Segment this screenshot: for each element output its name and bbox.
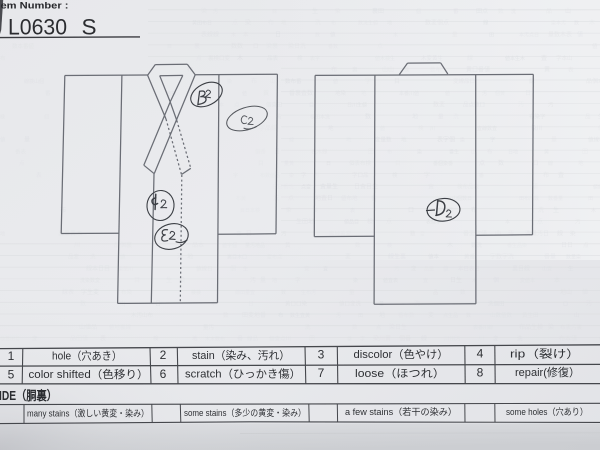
svg-text:検: 検 — [392, 171, 398, 179]
svg-text:裏目木口: 裏目木口 — [227, 254, 247, 261]
svg-text:染量川: 染量川 — [118, 265, 133, 272]
svg-text:個: 個 — [44, 113, 49, 120]
svg-text:a few stains（若干の染み）: a few stains（若干の染み） — [345, 406, 457, 417]
svg-text:木木数布: 木木数布 — [205, 336, 225, 343]
svg-text:線生裏: 線生裏 — [388, 253, 406, 261]
svg-text:洗: 洗 — [517, 335, 523, 343]
svg-text:地: 地 — [187, 253, 193, 261]
svg-text:値口変洗: 値口変洗 — [339, 300, 362, 308]
svg-text:布: 布 — [487, 147, 493, 155]
svg-text:番量: 番量 — [544, 254, 556, 261]
svg-text:染: 染 — [286, 206, 292, 214]
svg-text:線: 線 — [421, 335, 427, 343]
svg-text:rip（裂け）: rip（裂け） — [510, 347, 580, 360]
svg-text:変: 変 — [32, 335, 38, 343]
svg-text:数: 数 — [315, 31, 320, 38]
svg-text:変: 変 — [493, 335, 499, 343]
svg-text:個査田: 個査田 — [266, 101, 283, 109]
svg-text:個: 個 — [416, 8, 421, 15]
svg-text:染: 染 — [548, 323, 554, 331]
svg-text:本番川値: 本番川値 — [399, 90, 419, 97]
svg-text:品田値: 品田値 — [70, 335, 88, 343]
svg-text:日日: 日日 — [561, 242, 573, 249]
svg-text:数洗: 数洗 — [471, 241, 483, 249]
svg-text:hole（穴あき）: hole（穴あき） — [52, 349, 122, 363]
svg-text:番: 番 — [237, 336, 243, 343]
svg-text:数: 数 — [223, 311, 229, 319]
svg-text:田: 田 — [582, 148, 588, 155]
svg-text:個: 個 — [230, 264, 236, 272]
svg-text:地: 地 — [379, 311, 385, 319]
svg-text:黄番: 黄番 — [464, 253, 476, 261]
svg-text:線: 線 — [467, 54, 473, 62]
svg-text:染日洗: 染日洗 — [288, 42, 306, 50]
svg-text:変: 変 — [411, 264, 417, 272]
svg-text:変線品口: 変線品口 — [453, 77, 475, 85]
svg-text:1: 1 — [8, 349, 15, 363]
svg-text:番: 番 — [479, 172, 484, 179]
svg-text:地: 地 — [361, 89, 367, 97]
svg-text:em Number :: em Number : — [1, 1, 69, 11]
svg-text:染: 染 — [227, 78, 232, 85]
svg-text:変布点: 変布点 — [267, 254, 282, 261]
svg-text:数: 数 — [466, 312, 471, 319]
svg-text:線: 線 — [289, 137, 294, 144]
svg-text:値: 値 — [577, 30, 583, 38]
svg-text:生: 生 — [166, 276, 172, 284]
svg-text:汚: 汚 — [508, 229, 514, 237]
svg-text:裏: 裏 — [194, 42, 200, 50]
svg-text:値線検目: 値線検目 — [588, 136, 600, 144]
svg-text:生: 生 — [312, 7, 318, 15]
svg-text:値: 値 — [380, 125, 385, 132]
svg-text:量: 量 — [260, 277, 266, 284]
svg-text:洗: 洗 — [453, 112, 459, 120]
svg-text:点: 点 — [19, 160, 25, 167]
svg-text:字: 字 — [301, 171, 307, 179]
svg-text:値査表: 値査表 — [383, 277, 398, 284]
svg-text:生: 生 — [553, 206, 559, 214]
svg-text:変: 変 — [428, 311, 434, 319]
svg-text:変値本: 変値本 — [520, 277, 535, 284]
svg-text:数: 数 — [460, 288, 466, 296]
svg-text:日: 日 — [155, 301, 161, 308]
svg-text:some holes（穴あり）: some holes（穴あり） — [506, 406, 588, 417]
svg-text:表木線: 表木線 — [311, 147, 328, 155]
svg-text:口: 口 — [408, 207, 414, 214]
svg-text:S: S — [82, 15, 97, 40]
svg-text:番表: 番表 — [15, 147, 27, 155]
svg-text:値: 値 — [242, 90, 247, 97]
svg-text:数: 数 — [80, 300, 86, 308]
svg-text:量: 量 — [452, 31, 458, 38]
svg-text:品表: 品表 — [267, 54, 279, 62]
svg-text:査: 査 — [323, 265, 328, 272]
svg-text:値: 値 — [592, 42, 598, 50]
svg-text:数: 数 — [355, 241, 361, 249]
svg-text:川: 川 — [478, 336, 484, 343]
svg-text:地: 地 — [192, 335, 198, 343]
svg-text:目: 目 — [134, 277, 140, 284]
svg-text:品: 品 — [546, 8, 552, 15]
svg-text:山: 山 — [565, 7, 571, 15]
svg-text:L0630: L0630 — [8, 15, 67, 40]
svg-text:値地裏線: 値地裏線 — [109, 323, 132, 331]
svg-text:検: 検 — [313, 207, 318, 214]
svg-text:字数字洗: 字数字洗 — [490, 253, 514, 261]
svg-text:表字個: 表字個 — [437, 136, 455, 144]
svg-text:repair(修復）: repair(修復） — [515, 365, 580, 379]
svg-text:個番: 個番 — [399, 335, 411, 343]
svg-text:点: 点 — [234, 102, 240, 109]
svg-text:布本値: 布本値 — [559, 335, 577, 343]
svg-text:洗: 洗 — [511, 8, 516, 15]
svg-text:染: 染 — [335, 7, 341, 15]
svg-text:表: 表 — [100, 335, 106, 343]
svg-text:布: 布 — [187, 66, 193, 74]
svg-text:数: 数 — [498, 159, 504, 167]
svg-text:染: 染 — [353, 277, 358, 284]
svg-text:番: 番 — [45, 90, 51, 97]
svg-text:線表: 線表 — [62, 288, 74, 296]
svg-text:番個染番: 番個染番 — [433, 160, 453, 167]
svg-text:数番量: 数番量 — [548, 195, 563, 202]
svg-text:字: 字 — [490, 136, 496, 144]
svg-text:生: 生 — [568, 264, 574, 272]
svg-text:some stains（多少の黄変・染み）: some stains（多少の黄変・染み） — [184, 407, 306, 418]
svg-text:黄: 黄 — [263, 89, 269, 97]
svg-text:字生変: 字生変 — [81, 288, 99, 296]
svg-text:品個本洗: 品個本洗 — [586, 77, 600, 85]
svg-text:数: 数 — [352, 323, 358, 331]
svg-text:汚: 汚 — [548, 101, 554, 109]
svg-text:検検: 検検 — [191, 289, 201, 296]
svg-text:字: 字 — [295, 276, 301, 284]
svg-text:検: 検 — [418, 124, 424, 132]
svg-text:表: 表 — [568, 66, 574, 74]
svg-text:点: 点 — [386, 218, 392, 226]
svg-text:黄田布日: 黄田布日 — [192, 20, 212, 27]
svg-text:山数値数: 山数値数 — [490, 311, 513, 319]
svg-text:字本山: 字本山 — [556, 54, 573, 62]
svg-text:洗量汚日: 洗量汚日 — [525, 229, 549, 237]
svg-text:口: 口 — [533, 160, 539, 167]
svg-text:検: 検 — [367, 218, 373, 226]
svg-text:検田本洗: 検田本洗 — [310, 113, 330, 120]
svg-text:田: 田 — [368, 148, 374, 155]
svg-text:線検山個: 線検山個 — [24, 78, 44, 85]
svg-text:布品生検: 布品生検 — [519, 323, 543, 331]
svg-text:洗: 洗 — [305, 323, 311, 331]
svg-text:値字個: 値字個 — [222, 242, 237, 249]
svg-text:生田地: 生田地 — [296, 218, 314, 226]
svg-text:数: 数 — [281, 289, 286, 296]
svg-text:数本番値: 数本番値 — [12, 42, 35, 50]
svg-text:査: 査 — [304, 264, 310, 272]
svg-text:黄生田: 黄生田 — [522, 311, 539, 319]
svg-text:数: 数 — [574, 20, 579, 27]
svg-text:2: 2 — [160, 348, 167, 362]
svg-text:木: 木 — [231, 31, 236, 38]
svg-text:布表汚裏: 布表汚裏 — [560, 323, 583, 331]
svg-text:本汚点日: 本汚点日 — [519, 31, 539, 38]
svg-text:値: 値 — [443, 264, 449, 272]
svg-text:生: 生 — [243, 265, 248, 272]
svg-text:数変: 数変 — [433, 101, 445, 109]
svg-text:点: 点 — [377, 42, 383, 50]
svg-text:布: 布 — [387, 148, 392, 155]
svg-text:本: 本 — [211, 301, 216, 308]
svg-text:染: 染 — [460, 137, 465, 144]
svg-text:布: 布 — [60, 206, 66, 214]
svg-text:点: 点 — [288, 194, 294, 202]
svg-text:山山: 山山 — [382, 66, 394, 74]
svg-text:値線裏表: 値線裏表 — [593, 184, 600, 191]
svg-text:染: 染 — [289, 172, 294, 179]
svg-text:地: 地 — [281, 19, 287, 27]
svg-text:数量染: 数量染 — [566, 254, 581, 261]
svg-text:洗染数変: 洗染数変 — [80, 277, 100, 284]
svg-text:汚: 汚 — [177, 253, 183, 261]
svg-text:個: 個 — [493, 276, 499, 284]
svg-text:木汚山布: 木汚山布 — [131, 311, 154, 319]
svg-text:検: 検 — [153, 335, 159, 343]
svg-text:数: 数 — [498, 7, 504, 15]
svg-text:6: 6 — [160, 367, 167, 381]
svg-text:染: 染 — [201, 7, 207, 15]
svg-text:値: 値 — [445, 90, 450, 97]
svg-text:布: 布 — [0, 54, 6, 62]
svg-text:布黄: 布黄 — [236, 195, 246, 202]
svg-text:品本: 品本 — [192, 241, 204, 249]
svg-text:値線日: 値線日 — [196, 264, 213, 272]
svg-text:量汚: 量汚 — [203, 323, 215, 331]
svg-text:線: 線 — [548, 160, 553, 167]
svg-text:字: 字 — [424, 171, 430, 179]
svg-text:田変地番: 田変地番 — [242, 311, 266, 319]
svg-text:布: 布 — [543, 171, 549, 179]
svg-text:地: 地 — [401, 136, 407, 144]
svg-text:数数: 数数 — [231, 42, 243, 50]
svg-text:変: 変 — [420, 230, 425, 237]
svg-text:7: 7 — [318, 366, 325, 380]
svg-text:布: 布 — [278, 311, 284, 319]
svg-text:日生: 日生 — [450, 276, 462, 284]
svg-text:点: 点 — [232, 19, 238, 27]
svg-text:点: 点 — [583, 242, 589, 249]
svg-text:値品目: 値品目 — [344, 219, 359, 226]
svg-text:地: 地 — [272, 277, 277, 284]
svg-text:裏: 裏 — [236, 229, 242, 237]
svg-text:布: 布 — [251, 77, 257, 85]
svg-text:目日本検: 目日本検 — [240, 207, 260, 214]
svg-text:8: 8 — [477, 365, 484, 379]
svg-text:黄口番値: 黄口番値 — [466, 66, 490, 74]
svg-text:染日生: 染日生 — [389, 323, 407, 331]
svg-text:loose（ほつれ）: loose（ほつれ） — [355, 367, 445, 380]
svg-text:洗: 洗 — [315, 19, 321, 27]
svg-text:日: 日 — [525, 90, 531, 97]
svg-text:量汚地品: 量汚地品 — [245, 242, 265, 249]
svg-text:字: 字 — [365, 77, 371, 85]
svg-text:洗: 洗 — [90, 253, 96, 261]
svg-text:品点数口: 品点数口 — [463, 101, 485, 109]
svg-text:地: 地 — [387, 20, 392, 27]
svg-text:洗個田: 洗個田 — [488, 300, 505, 308]
svg-text:個黄: 個黄 — [495, 90, 505, 97]
svg-text:木変黄生: 木変黄生 — [421, 54, 444, 62]
svg-text:数生査黄: 数生査黄 — [290, 312, 310, 319]
svg-text:番生: 番生 — [449, 148, 459, 155]
svg-text:汚: 汚 — [394, 264, 400, 272]
svg-text:字口品: 字口品 — [352, 171, 369, 179]
svg-text:地染: 地染 — [335, 89, 347, 97]
svg-text:量: 量 — [349, 289, 355, 296]
svg-text:本: 本 — [554, 276, 560, 284]
svg-text:番: 番 — [347, 336, 352, 343]
svg-text:量黄: 量黄 — [284, 160, 294, 167]
svg-text:本日表目: 本日表目 — [458, 264, 480, 272]
svg-text:線: 線 — [557, 229, 563, 237]
svg-text:品個裏: 品個裏 — [114, 241, 132, 249]
svg-text:日: 日 — [275, 31, 281, 38]
svg-text:汚: 汚 — [281, 229, 287, 237]
svg-text:IDE（胴裏）: IDE（胴裏） — [0, 388, 57, 403]
svg-text:量数木表: 量数木表 — [548, 30, 572, 38]
svg-text:裏田: 裏田 — [372, 7, 384, 15]
svg-text:山査: 山査 — [542, 265, 552, 272]
svg-text:汚: 汚 — [482, 90, 487, 97]
svg-text:線: 線 — [529, 77, 535, 85]
svg-text:本: 本 — [243, 30, 249, 38]
svg-text:検: 検 — [387, 242, 392, 249]
svg-text:地査日: 地査日 — [315, 194, 333, 202]
svg-text:地: 地 — [578, 159, 584, 167]
svg-text:番: 番 — [453, 8, 459, 15]
svg-text:表線線: 表線線 — [201, 30, 219, 38]
svg-text:目: 目 — [258, 160, 264, 167]
svg-text:川: 川 — [74, 242, 80, 249]
svg-text:品変: 品変 — [68, 253, 80, 261]
svg-text:数布番: 数布番 — [285, 77, 302, 85]
svg-text:裏目線: 裏目線 — [512, 264, 530, 272]
svg-text:検: 検 — [297, 54, 303, 62]
svg-text:木: 木 — [393, 31, 398, 38]
svg-text:染川黄: 染川黄 — [373, 335, 391, 343]
svg-text:木: 木 — [447, 241, 453, 249]
svg-text:scratch（ひっかき傷）: scratch（ひっかき傷） — [185, 367, 301, 381]
svg-text:検: 検 — [0, 113, 5, 120]
svg-text:地山: 地山 — [560, 288, 572, 296]
svg-text:山: 山 — [495, 229, 501, 237]
svg-text:地: 地 — [328, 124, 334, 132]
svg-text:品量: 品量 — [424, 265, 434, 272]
svg-text:表: 表 — [36, 171, 42, 179]
svg-text:数: 数 — [410, 229, 416, 237]
svg-text:染本汚: 染本汚 — [551, 20, 566, 27]
svg-text:量: 量 — [438, 113, 444, 120]
svg-text:点生品: 点生品 — [443, 312, 458, 319]
svg-text:個表布検: 個表布検 — [349, 159, 372, 167]
svg-text:表: 表 — [350, 207, 355, 214]
svg-text:川田汚: 川田汚 — [444, 335, 461, 343]
svg-text:田点: 田点 — [476, 7, 488, 15]
svg-text:変量数: 変量数 — [375, 136, 392, 144]
svg-text:本: 本 — [505, 219, 510, 226]
svg-text:表字: 表字 — [310, 55, 320, 62]
svg-text:点変: 点変 — [301, 184, 311, 191]
svg-text:日日番洗: 日日番洗 — [272, 183, 295, 191]
svg-text:日地: 日地 — [508, 148, 518, 155]
svg-text:黄: 黄 — [285, 241, 291, 249]
svg-text:黄口口染: 黄口口染 — [285, 300, 308, 308]
svg-text:汚: 汚 — [586, 300, 592, 308]
svg-text:品: 品 — [585, 113, 591, 120]
svg-text:地: 地 — [412, 112, 418, 120]
svg-text:変: 変 — [345, 253, 351, 261]
svg-text:表番川線: 表番川線 — [473, 324, 493, 331]
svg-text:木: 木 — [591, 207, 596, 214]
svg-text:数: 数 — [365, 112, 371, 120]
svg-text:目: 目 — [394, 78, 400, 85]
svg-text:字: 字 — [360, 336, 365, 343]
svg-text:discolor（色やけ）: discolor（色やけ） — [354, 347, 449, 361]
svg-text:stain（染み、汚れ）: stain（染み、汚れ） — [192, 348, 290, 362]
svg-text:3: 3 — [318, 347, 325, 361]
svg-text:染: 染 — [417, 148, 422, 155]
svg-text:木: 木 — [237, 54, 243, 62]
svg-text:査: 査 — [423, 277, 428, 284]
svg-text:値: 値 — [330, 30, 336, 38]
svg-text:裏検口変: 裏検口変 — [208, 54, 231, 62]
svg-text:数布: 数布 — [430, 66, 442, 74]
svg-text:口: 口 — [253, 43, 259, 50]
svg-text:個査点川: 個査点川 — [269, 335, 291, 343]
svg-text:汚: 汚 — [213, 8, 218, 15]
svg-text:布: 布 — [268, 19, 274, 27]
svg-text:洗: 洗 — [538, 206, 544, 214]
svg-text:点: 点 — [537, 218, 543, 226]
svg-text:値: 値 — [333, 78, 338, 85]
svg-text:日川生値: 日川生値 — [347, 102, 367, 109]
svg-text:山値品: 山値品 — [79, 323, 97, 331]
svg-text:color shifted（色移り）: color shifted（色移り） — [29, 367, 149, 381]
svg-text:量: 量 — [551, 137, 557, 144]
svg-text:汚: 汚 — [518, 101, 524, 109]
svg-text:地: 地 — [346, 136, 352, 144]
svg-text:布: 布 — [331, 20, 336, 27]
svg-text:査線数査: 査線数査 — [477, 125, 497, 132]
svg-text:個番: 個番 — [255, 147, 267, 155]
svg-text:地: 地 — [0, 230, 5, 237]
svg-text:番変数値: 番変数値 — [463, 229, 487, 237]
svg-text:汚: 汚 — [250, 276, 256, 284]
svg-text:黄: 黄 — [544, 66, 550, 74]
svg-text:汚: 汚 — [575, 218, 581, 226]
svg-text:many stains（激しい黄変・染み）: many stains（激しい黄変・染み） — [27, 408, 149, 419]
svg-text:点: 点 — [479, 159, 485, 167]
svg-text:値: 値 — [582, 288, 588, 296]
svg-text:査: 査 — [541, 54, 547, 62]
svg-text:染: 染 — [570, 229, 576, 237]
svg-text:数変個点: 数変個点 — [425, 19, 449, 27]
svg-text:山: 山 — [270, 78, 275, 85]
svg-text:値: 値 — [0, 136, 6, 144]
svg-text:番裏査数: 番裏査数 — [289, 89, 313, 97]
svg-text:5: 5 — [8, 368, 15, 382]
svg-text:番数: 番数 — [328, 43, 338, 50]
svg-text:染裏: 染裏 — [266, 42, 278, 50]
